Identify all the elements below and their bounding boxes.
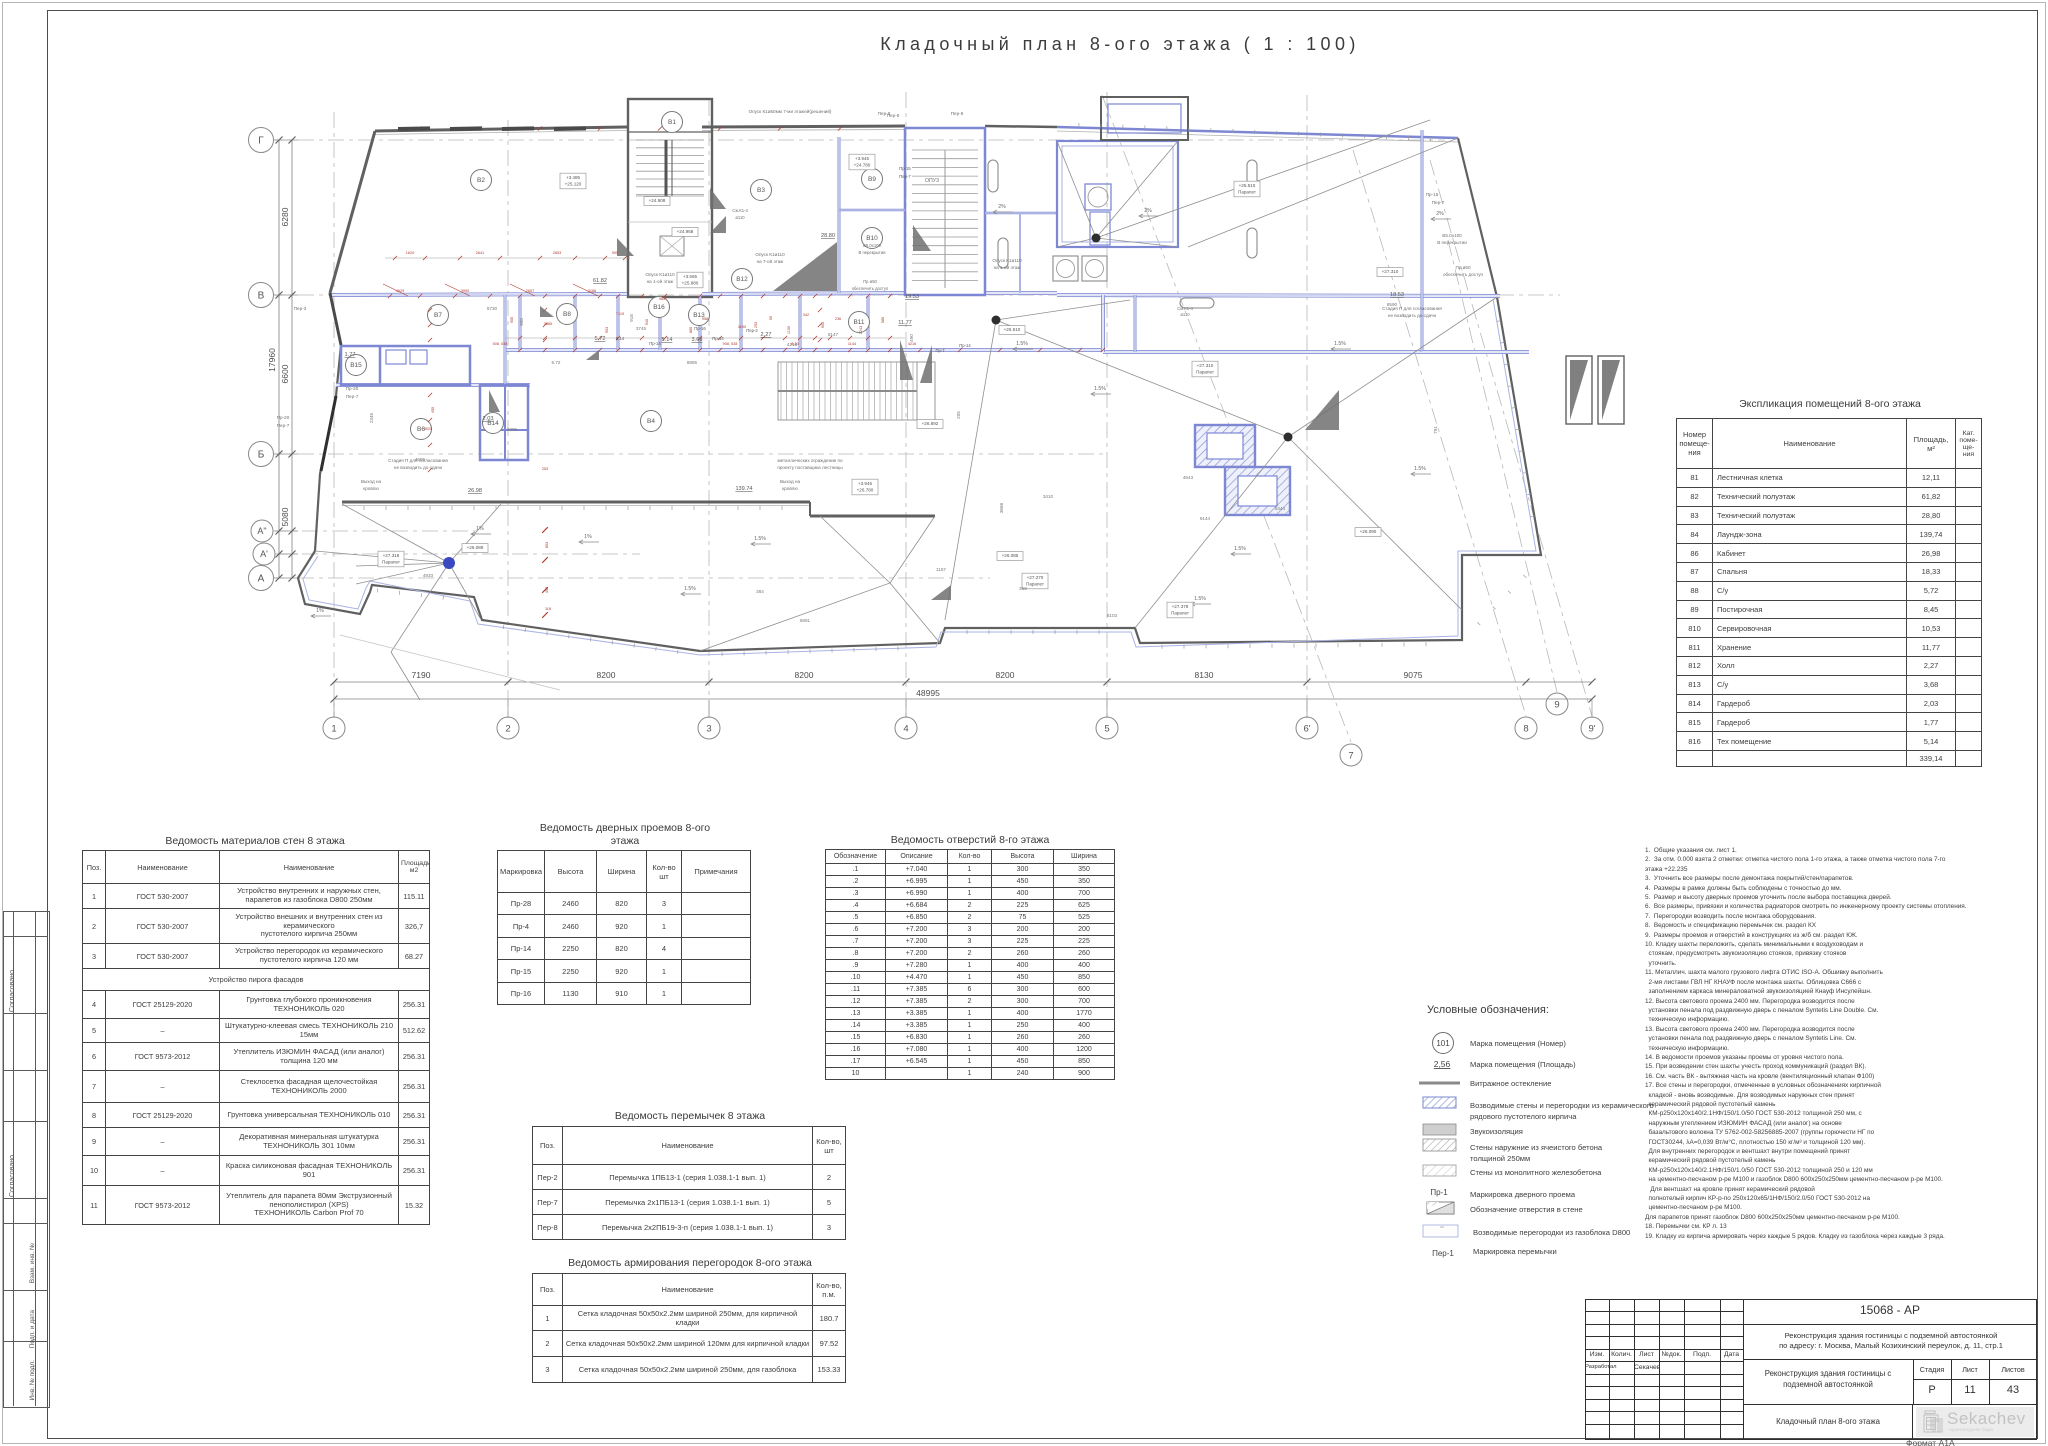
svg-text:6147: 6147 (828, 332, 839, 337)
svg-text:В11: В11 (853, 319, 864, 326)
svg-text:Парапет: Парапет (1171, 611, 1190, 616)
svg-text:1.5%: 1.5% (1094, 386, 1106, 392)
svg-text:342: 342 (803, 313, 809, 317)
svg-text:1.5%: 1.5% (1016, 341, 1028, 347)
svg-text:918: 918 (629, 314, 634, 322)
svg-text:обеспечить доступ: обеспечить доступ (1443, 272, 1484, 277)
svg-text:ø110: ø110 (735, 215, 745, 220)
svg-text:+24.958: +24.958 (677, 229, 694, 234)
svg-text:364: 364 (756, 589, 764, 594)
svg-text:1.5%: 1.5% (1414, 466, 1426, 472)
svg-text:А: А (258, 574, 265, 585)
svg-text:5.72: 5.72 (552, 360, 561, 365)
svg-text:205: 205 (956, 411, 961, 419)
svg-text:Опуск К1ø50мм 7-ми этажей(реше: Опуск К1ø50мм 7-ми этажей(решений) (749, 108, 832, 114)
svg-text:9075: 9075 (1404, 670, 1423, 680)
svg-text:+24.908: +24.908 (649, 198, 666, 203)
svg-text:48995: 48995 (916, 688, 940, 698)
svg-text:6280: 6280 (280, 207, 290, 226)
svg-text:4643: 4643 (1183, 475, 1194, 480)
svg-text:+3.485: +3.485 (566, 175, 581, 180)
svg-text:1%: 1% (316, 608, 324, 614)
svg-text:9: 9 (1554, 699, 1559, 710)
svg-text:Г: Г (258, 136, 264, 147)
svg-text:7: 7 (1348, 750, 1353, 761)
svg-text:+27.318: +27.318 (383, 553, 400, 558)
svg-text:А': А' (260, 549, 268, 559)
svg-text:+3.945: +3.945 (855, 156, 870, 161)
svg-text:1%: 1% (584, 534, 592, 540)
svg-text:19.53: 19.53 (905, 294, 919, 300)
svg-text:1620: 1620 (406, 251, 414, 255)
svg-text:1157: 1157 (936, 567, 946, 572)
svg-text:+24.780: +24.780 (854, 163, 871, 168)
svg-text:В перекрытии: В перекрытии (859, 250, 887, 255)
svg-text:3166: 3166 (588, 289, 596, 293)
svg-text:1243: 1243 (859, 326, 863, 334)
svg-text:101: 101 (1436, 1039, 1450, 1048)
svg-text:+25.120: +25.120 (565, 182, 582, 187)
svg-text:11.77: 11.77 (898, 320, 912, 326)
svg-text:Пр-14: Пр-14 (712, 336, 724, 341)
svg-text:908, 538: 908, 538 (723, 342, 738, 346)
svg-text:Парапет: Парапет (1196, 370, 1215, 375)
svg-text:+25.880: +25.880 (682, 281, 699, 286)
svg-text:8590: 8590 (1387, 302, 1398, 307)
svg-text:940: 940 (645, 319, 649, 325)
svg-text:1.5%: 1.5% (1194, 596, 1206, 602)
svg-text:1150: 1150 (787, 326, 791, 334)
svg-text:Сж.К1-4: Сж.К1-4 (732, 208, 748, 213)
svg-text:2641: 2641 (476, 251, 484, 255)
svg-text:ОПУ3: ОПУ3 (925, 178, 939, 184)
svg-text:585: 585 (881, 317, 885, 323)
svg-text:2%: 2% (1144, 208, 1152, 214)
svg-text:958: 958 (519, 318, 524, 326)
svg-text:обеспечить доступ: обеспечить доступ (852, 286, 889, 291)
svg-text:61.82: 61.82 (593, 278, 607, 284)
svg-text:+27.310: +27.310 (1382, 269, 1399, 274)
svg-text:Пр-14: Пр-14 (649, 341, 661, 346)
svg-text:В2: В2 (477, 177, 485, 184)
svg-text:139.74: 139.74 (735, 486, 752, 492)
svg-text:Б: Б (258, 450, 265, 461)
svg-text:Пер-2: Пер-2 (746, 328, 758, 333)
svg-text:+26.780: +26.780 (857, 488, 874, 493)
svg-text:453: 453 (545, 587, 549, 593)
svg-text:Пр-14: Пр-14 (959, 343, 971, 348)
svg-text:не возводить до сдачи: не возводить до сдачи (1388, 313, 1437, 318)
svg-text:236: 236 (835, 317, 841, 321)
svg-text:1.5%: 1.5% (754, 536, 766, 542)
svg-text:+3.565: +3.565 (683, 274, 698, 279)
svg-text:1: 1 (331, 723, 336, 734)
svg-text:В3: В3 (757, 187, 765, 194)
svg-text:металлических ограждение по: металлических ограждение по (777, 458, 843, 463)
svg-text:5.72: 5.72 (595, 336, 606, 342)
svg-text:1.5%: 1.5% (1334, 341, 1346, 347)
svg-text:3: 3 (706, 723, 711, 734)
svg-text:А": А" (257, 526, 266, 536)
svg-text:8103: 8103 (1107, 613, 1118, 618)
svg-text:Пер-8: Пер-8 (887, 113, 900, 118)
svg-text:8200: 8200 (795, 670, 814, 680)
svg-text:1.5%: 1.5% (684, 586, 696, 592)
svg-text:В7: В7 (434, 312, 442, 319)
svg-text:+3.945: +3.945 (858, 481, 873, 486)
svg-text:Пр-7: Пр-7 (935, 348, 945, 353)
svg-text:1.5%: 1.5% (1234, 546, 1246, 552)
svg-text:8885: 8885 (687, 360, 698, 365)
svg-text:17960: 17960 (267, 348, 277, 372)
svg-text:253: 253 (542, 467, 548, 471)
svg-text:90: 90 (769, 316, 773, 320)
svg-text:4933: 4933 (423, 573, 434, 578)
svg-text:Пер-7: Пер-7 (1432, 200, 1445, 205)
svg-text:+26.892: +26.892 (922, 421, 939, 426)
svg-text:983: 983 (659, 297, 665, 301)
svg-text:В16: В16 (653, 304, 665, 311)
svg-text:8: 8 (1523, 723, 1528, 734)
svg-text:2653: 2653 (553, 251, 561, 255)
svg-text:Пер-3: Пер-3 (294, 306, 307, 311)
svg-text:9': 9' (1588, 723, 1595, 734)
svg-text:+27.270: +27.270 (1027, 575, 1044, 580)
svg-text:кровлю: кровлю (782, 486, 798, 491)
svg-text:5730: 5730 (487, 306, 498, 311)
svg-text:+26.089: +26.089 (467, 545, 484, 550)
svg-text:Опуск К1ø110: Опуск К1ø110 (645, 272, 675, 277)
svg-text:См.К1-4: См.К1-4 (1177, 306, 1193, 311)
svg-text:Выход на: Выход на (361, 479, 382, 484)
svg-text:1144: 1144 (848, 342, 856, 346)
svg-text:В12: В12 (736, 276, 748, 283)
svg-text:8200: 8200 (996, 670, 1015, 680)
svg-text:3885: 3885 (544, 322, 552, 326)
svg-text:5: 5 (1104, 723, 1109, 734)
svg-text:В8: В8 (563, 311, 571, 318)
svg-text:4216: 4216 (908, 342, 916, 346)
svg-text:кровлю: кровлю (363, 486, 379, 491)
svg-text:903: 903 (605, 327, 609, 333)
svg-text:+26.510: +26.510 (1004, 327, 1021, 332)
svg-text:2%: 2% (998, 204, 1006, 210)
svg-text:Парапет: Парапет (1026, 582, 1045, 587)
svg-text:В15: В15 (350, 362, 362, 369)
svg-text:Пр-15: Пр-15 (899, 166, 911, 171)
svg-text:2.03: 2.03 (483, 416, 494, 422)
svg-text:Пр ø50: Пр ø50 (1455, 265, 1470, 270)
svg-text:26.98: 26.98 (468, 488, 482, 494)
svg-text:проекту поставщика лестницы: проекту поставщика лестницы (777, 465, 842, 470)
svg-text:Выход на: Выход на (780, 479, 801, 484)
svg-text:+26.085: +26.085 (1002, 553, 1019, 558)
svg-text:+25.510: +25.510 (1239, 183, 1256, 188)
svg-text:9144: 9144 (1200, 516, 1211, 521)
svg-text:258: 258 (1019, 586, 1027, 591)
svg-text:118: 118 (545, 607, 551, 611)
svg-text:6': 6' (1303, 723, 1310, 734)
svg-text:+27.310: +27.310 (1197, 363, 1214, 368)
svg-text:4655: 4655 (415, 457, 426, 462)
svg-text:903: 903 (821, 322, 825, 328)
svg-text:на 1-ой этаж: на 1-ой этаж (647, 278, 675, 284)
svg-text:Опуск К1ø110: Опуск К1ø110 (755, 252, 785, 257)
svg-text:Пр-20: Пр-20 (346, 386, 359, 391)
svg-text:В4: В4 (647, 418, 655, 425)
svg-text:958: 958 (702, 317, 708, 321)
svg-text:Пер-1: Пер-1 (1432, 1249, 1454, 1258)
svg-text:7115: 7115 (616, 312, 624, 316)
svg-text:Пр-16: Пр-16 (694, 326, 706, 331)
svg-text:905: 905 (510, 317, 514, 323)
svg-text:В10: В10 (866, 235, 878, 242)
svg-text:5891: 5891 (800, 618, 811, 623)
svg-text:В1: В1 (668, 119, 676, 126)
svg-text:885: 885 (689, 327, 693, 333)
svg-text:1190: 1190 (738, 325, 746, 329)
svg-text:3020: 3020 (424, 427, 432, 431)
svg-text:5,14: 5,14 (616, 336, 625, 341)
svg-text:7190: 7190 (412, 670, 431, 680)
svg-text:3668: 3668 (999, 502, 1004, 513)
svg-text:на 1-ой этаж: на 1-ой этаж (994, 264, 1022, 270)
svg-text:2395: 2395 (507, 427, 518, 432)
svg-text:2,56: 2,56 (1434, 1059, 1451, 1069)
svg-text:2%: 2% (1436, 211, 1444, 217)
svg-text:18.53: 18.53 (1390, 292, 1404, 298)
svg-text:5444: 5444 (1275, 506, 1286, 511)
svg-text:28.80: 28.80 (821, 233, 835, 239)
svg-text:8130: 8130 (1195, 670, 1214, 680)
svg-text:490: 490 (909, 334, 914, 342)
svg-text:Пер-8: Пер-8 (951, 111, 964, 116)
svg-text:Пер-7: Пер-7 (277, 423, 290, 428)
svg-text:2: 2 (505, 723, 510, 734)
svg-text:Парапет: Парапет (1238, 190, 1257, 195)
svg-text:Пр-20: Пр-20 (277, 415, 290, 420)
svg-text:Парапет: Парапет (382, 560, 401, 565)
svg-text:8200: 8200 (597, 670, 616, 680)
svg-text:+27.378: +27.378 (1172, 604, 1189, 609)
svg-text:2.27: 2.27 (761, 332, 772, 338)
svg-text:8.20: 8.20 (791, 342, 798, 346)
svg-text:1%: 1% (476, 526, 484, 532)
svg-text:508, 538: 508, 538 (493, 342, 508, 346)
svg-text:ø110: ø110 (1180, 312, 1190, 317)
svg-text:853: 853 (545, 542, 549, 548)
svg-text:3410: 3410 (1043, 494, 1054, 499)
svg-text:В перекрытии: В перекрытии (1437, 240, 1467, 245)
svg-text:455: 455 (431, 407, 435, 413)
svg-text:Опуск К1ø110: Опуск К1ø110 (992, 258, 1022, 263)
svg-text:Пр-15: Пр-15 (1426, 192, 1439, 197)
svg-text:5080: 5080 (280, 507, 290, 526)
svg-text:В5.0х100: В5.0х100 (1442, 233, 1462, 238)
svg-text:6600: 6600 (280, 364, 290, 383)
svg-text:Пр ø50: Пр ø50 (863, 279, 877, 284)
svg-text:В5.0х100: В5.0х100 (863, 243, 881, 248)
svg-text:В: В (258, 291, 265, 302)
svg-text:791: 791 (1433, 426, 1438, 434)
svg-text:+26.090: +26.090 (1360, 529, 1377, 534)
svg-text:В9: В9 (868, 176, 876, 183)
svg-text:4: 4 (903, 723, 908, 734)
svg-text:Пер-7: Пер-7 (346, 394, 359, 399)
svg-text:Пер-7: Пер-7 (899, 174, 911, 179)
svg-text:Пр-1: Пр-1 (1430, 1188, 1448, 1197)
svg-text:1.77: 1.77 (345, 352, 356, 358)
svg-text:не возводить до сдачи: не возводить до сдачи (394, 465, 443, 470)
svg-text:на 7-ой этаж: на 7-ой этаж (757, 258, 785, 264)
svg-text:3745: 3745 (636, 326, 647, 331)
svg-text:2345: 2345 (369, 412, 374, 423)
